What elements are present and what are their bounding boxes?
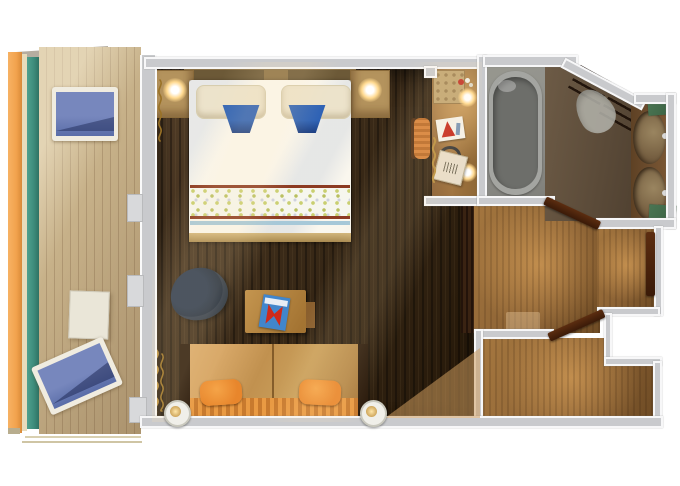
wall-closetext-right — [653, 361, 662, 423]
stateroom-floor-plan — [0, 0, 680, 486]
desk-magazine-stripe — [264, 297, 288, 307]
vanity-item-white2 — [469, 83, 473, 87]
wall-vestibule-right — [654, 226, 663, 316]
lounge-chair-top — [52, 87, 118, 141]
bed-runner-red-bottom — [190, 216, 350, 219]
wall-closet-left — [474, 329, 483, 423]
desk-magazine — [259, 294, 291, 331]
sink-top — [633, 111, 666, 164]
vanity-gold-decor — [428, 136, 440, 188]
balcony-deck-edge2 — [22, 441, 142, 443]
wall-sconce-left — [164, 400, 191, 427]
bathtub-basin — [493, 77, 538, 189]
nightstand-lamp-left — [163, 78, 187, 102]
wall-bath-right — [666, 93, 676, 229]
room-hall-partition — [461, 200, 474, 333]
wall-sconce-right — [360, 400, 387, 427]
sofa-pillow-right — [298, 379, 341, 406]
vanity-sign-sail — [438, 119, 457, 139]
balcony-corner-tick — [8, 428, 20, 434]
bathtub-highlight — [498, 80, 516, 92]
vanity-bag-label — [443, 162, 458, 175]
wall-bottom — [140, 416, 663, 428]
balcony-side-table — [68, 290, 110, 339]
wall-bath-left — [477, 55, 487, 206]
wall-bath-bottom — [596, 218, 676, 229]
nightstand-lamp-right — [358, 78, 382, 102]
bathtub — [489, 71, 542, 195]
balcony-deck-edge — [25, 436, 141, 438]
balcony-railing-orange — [8, 52, 22, 433]
vanity-sign-mark — [456, 123, 461, 135]
vanity-lamp-top — [458, 88, 477, 107]
balcony-door-jamb-1 — [127, 194, 143, 222]
bed-runner-pattern — [190, 188, 350, 216]
desk-magazine-bow — [263, 303, 285, 328]
sofa-pillow-left — [199, 379, 243, 407]
balcony-door-jamb-2 — [127, 275, 144, 307]
desk-side-shelf — [306, 302, 315, 328]
entrance-door — [646, 232, 655, 296]
bed-runner-blue — [190, 221, 350, 225]
wall-closet-top — [474, 329, 554, 339]
vanity-item-red — [458, 79, 464, 85]
vanity-sign-card — [436, 116, 466, 142]
bed-footboard — [189, 233, 351, 242]
balcony-divider-wall — [140, 55, 157, 427]
closet-floor — [483, 338, 654, 421]
wall-vanity-stub — [424, 66, 437, 78]
